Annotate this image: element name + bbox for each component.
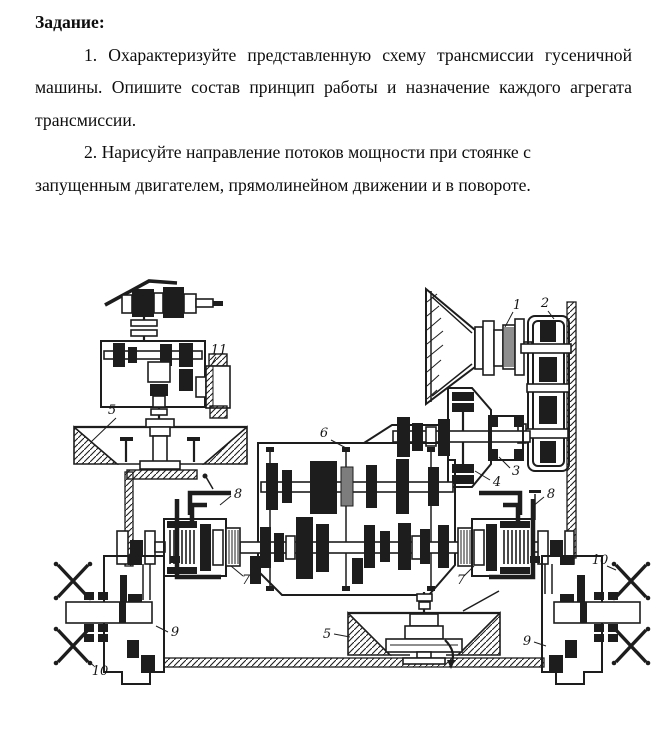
svg-text:10: 10 xyxy=(92,664,109,679)
svg-text:7: 7 xyxy=(242,573,251,588)
part-label-7-left: 7 xyxy=(231,566,251,588)
part-label-5-left: 5 xyxy=(91,403,116,442)
svg-text:9: 9 xyxy=(523,634,531,649)
compressor-gear xyxy=(206,354,230,418)
part-label-8-left: 8 xyxy=(220,487,242,505)
gearbox xyxy=(240,425,460,595)
svg-text:5: 5 xyxy=(323,627,331,642)
svg-text:1: 1 xyxy=(513,298,521,313)
svg-text:6: 6 xyxy=(320,426,328,441)
fan-bottom xyxy=(348,591,500,669)
fan-base-plate xyxy=(127,470,197,479)
svg-text:7: 7 xyxy=(457,573,466,588)
input-shaft-assembly xyxy=(393,388,530,487)
part-label-6: 6 xyxy=(320,426,346,448)
part-label-4: 4 xyxy=(475,471,501,490)
hull-floor xyxy=(164,658,544,667)
svg-text:4: 4 xyxy=(492,475,501,490)
part-label-10-left: 10 xyxy=(87,660,108,679)
part-label-5-bottom: 5 xyxy=(323,627,350,642)
gear-train xyxy=(518,316,571,471)
part-label-9-left: 9 xyxy=(156,625,179,640)
svg-text:8: 8 xyxy=(547,487,555,502)
svg-text:2: 2 xyxy=(540,296,549,311)
svg-text:10: 10 xyxy=(592,553,609,568)
part-label-10-right: 10 xyxy=(592,553,616,570)
fan-left xyxy=(74,419,247,479)
svg-text:5: 5 xyxy=(108,403,116,418)
svg-text:8: 8 xyxy=(234,487,242,502)
transmission-schematic: 1 2 3 4 5 5 6 7 7 8 8 9 9 10 10 11 xyxy=(0,0,666,735)
svg-text:3: 3 xyxy=(512,464,520,479)
document-page: { "page": { "heading": "Задание:", "task… xyxy=(0,0,666,735)
svg-text:9: 9 xyxy=(171,625,179,640)
svg-text:11: 11 xyxy=(211,343,228,358)
